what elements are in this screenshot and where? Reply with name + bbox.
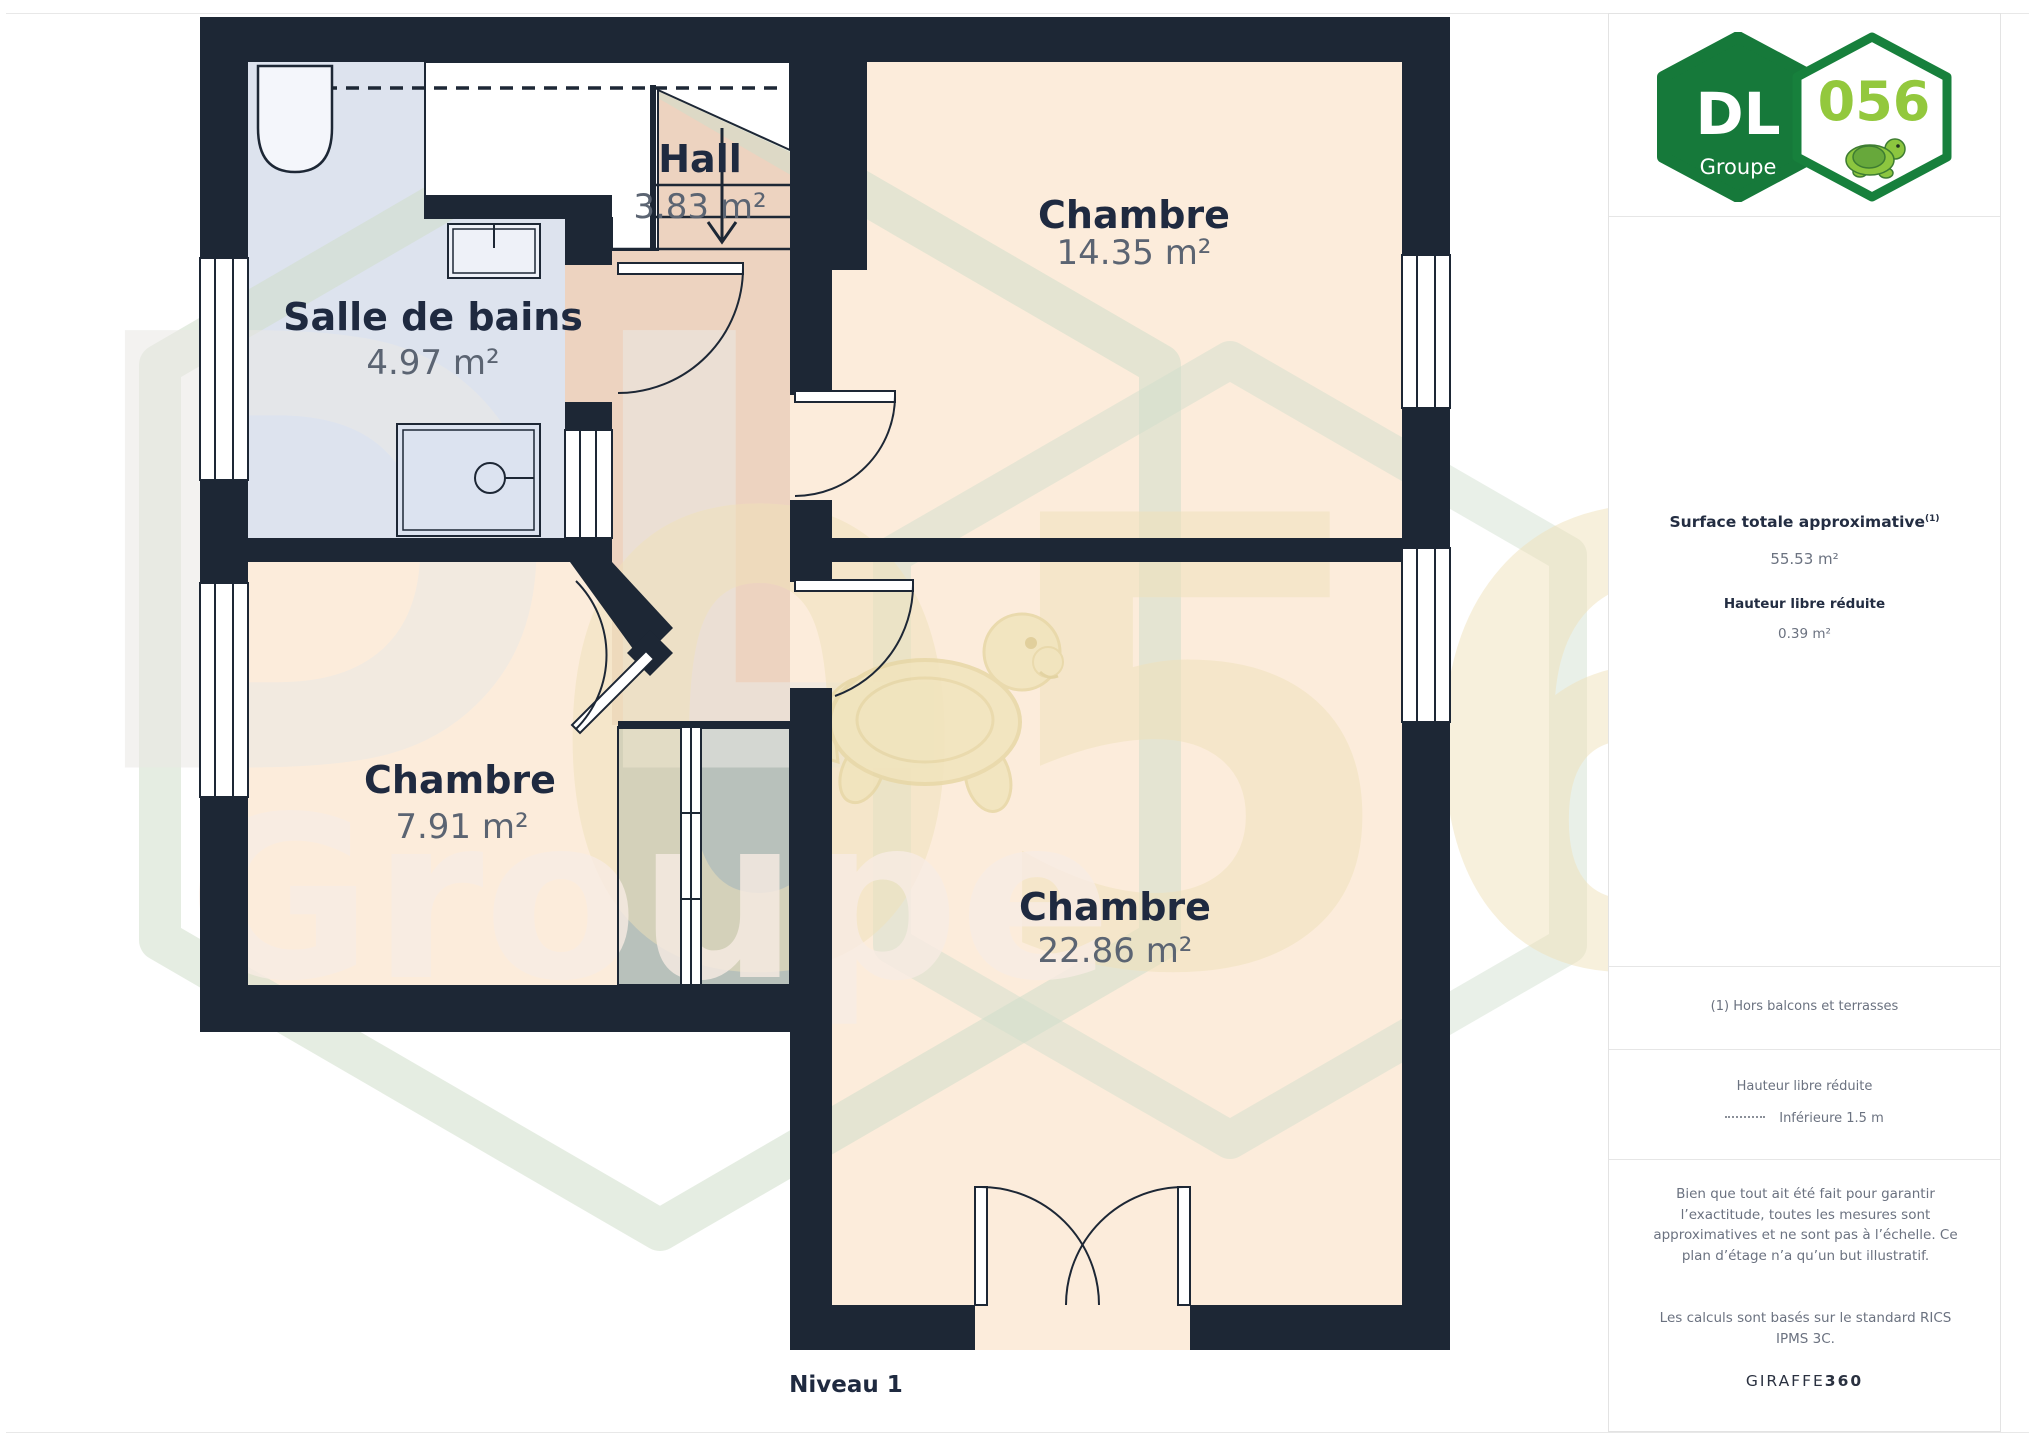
logo-code: 056 <box>1817 70 1930 133</box>
footnote: (1) Hors balcons et terrasses <box>1609 999 2000 1014</box>
window <box>200 583 248 797</box>
divider <box>1609 966 2000 967</box>
room-name: Chambre <box>1038 193 1230 237</box>
reduced-height-value: 0.39 m² <box>1609 626 2000 642</box>
divider <box>1609 1049 2000 1050</box>
brand-suffix: 360 <box>1825 1372 1863 1390</box>
dl-groupe-056-logo: DL Groupe 056 <box>1650 32 1960 202</box>
window <box>1402 255 1450 408</box>
room-name: Chambre <box>1019 885 1211 929</box>
window <box>1402 548 1450 722</box>
shower-icon <box>397 424 540 536</box>
room-name: Hall <box>658 137 742 181</box>
room-area: 3.83 m² <box>633 187 766 227</box>
floor-plan-page: DL 056 Groupe <box>0 0 2035 1440</box>
info-sidebar: DL Groupe 056 Surface totale approximati… <box>1608 13 2001 1432</box>
disclaimer-text: Bien que tout ait été fait pour garantir… <box>1650 1184 1961 1266</box>
toilet-icon <box>258 66 332 172</box>
room-area: 14.35 m² <box>1057 233 1212 273</box>
divider <box>1609 1159 2000 1160</box>
brand-mark: GIRAFFE360 <box>1609 1372 2000 1390</box>
legend-title: Hauteur libre réduite <box>1609 1079 2000 1094</box>
room-area: 7.91 m² <box>395 807 528 847</box>
room-area: 4.97 m² <box>366 343 499 383</box>
surface-total-title: Surface totale approximative(1) <box>1609 513 2000 531</box>
glazed-partition <box>681 727 701 985</box>
floor-plan-drawing: DL 056 Groupe <box>0 0 1608 1440</box>
room-name: Chambre <box>364 758 556 802</box>
reduced-height-title: Hauteur libre réduite <box>1609 596 2000 612</box>
brand-name: GIRAFFE <box>1746 1372 1825 1390</box>
surface-total-value: 55.53 m² <box>1609 550 2000 568</box>
level-label: Niveau 1 <box>789 1372 903 1398</box>
legend-item-label: Inférieure 1.5 m <box>1779 1111 1884 1126</box>
window <box>200 258 248 480</box>
divider <box>1609 216 2000 217</box>
company-logo: DL Groupe 056 <box>1609 32 2000 206</box>
standard-note: Les calculs sont basés sur le standard R… <box>1650 1308 1961 1349</box>
surface-total-label: Surface totale approximative <box>1670 513 1926 531</box>
surface-footnote-marker: (1) <box>1925 514 1940 524</box>
room-name: Salle de bains <box>283 295 583 339</box>
dotted-line-icon <box>1725 1116 1765 1118</box>
sink-icon <box>448 224 540 278</box>
legend-item: Inférieure 1.5 m <box>1609 1111 2000 1126</box>
room-area: 22.86 m² <box>1038 931 1193 971</box>
logo-word: Groupe <box>1699 155 1776 179</box>
logo-initials: DL <box>1695 80 1780 148</box>
interior-window <box>565 430 612 538</box>
